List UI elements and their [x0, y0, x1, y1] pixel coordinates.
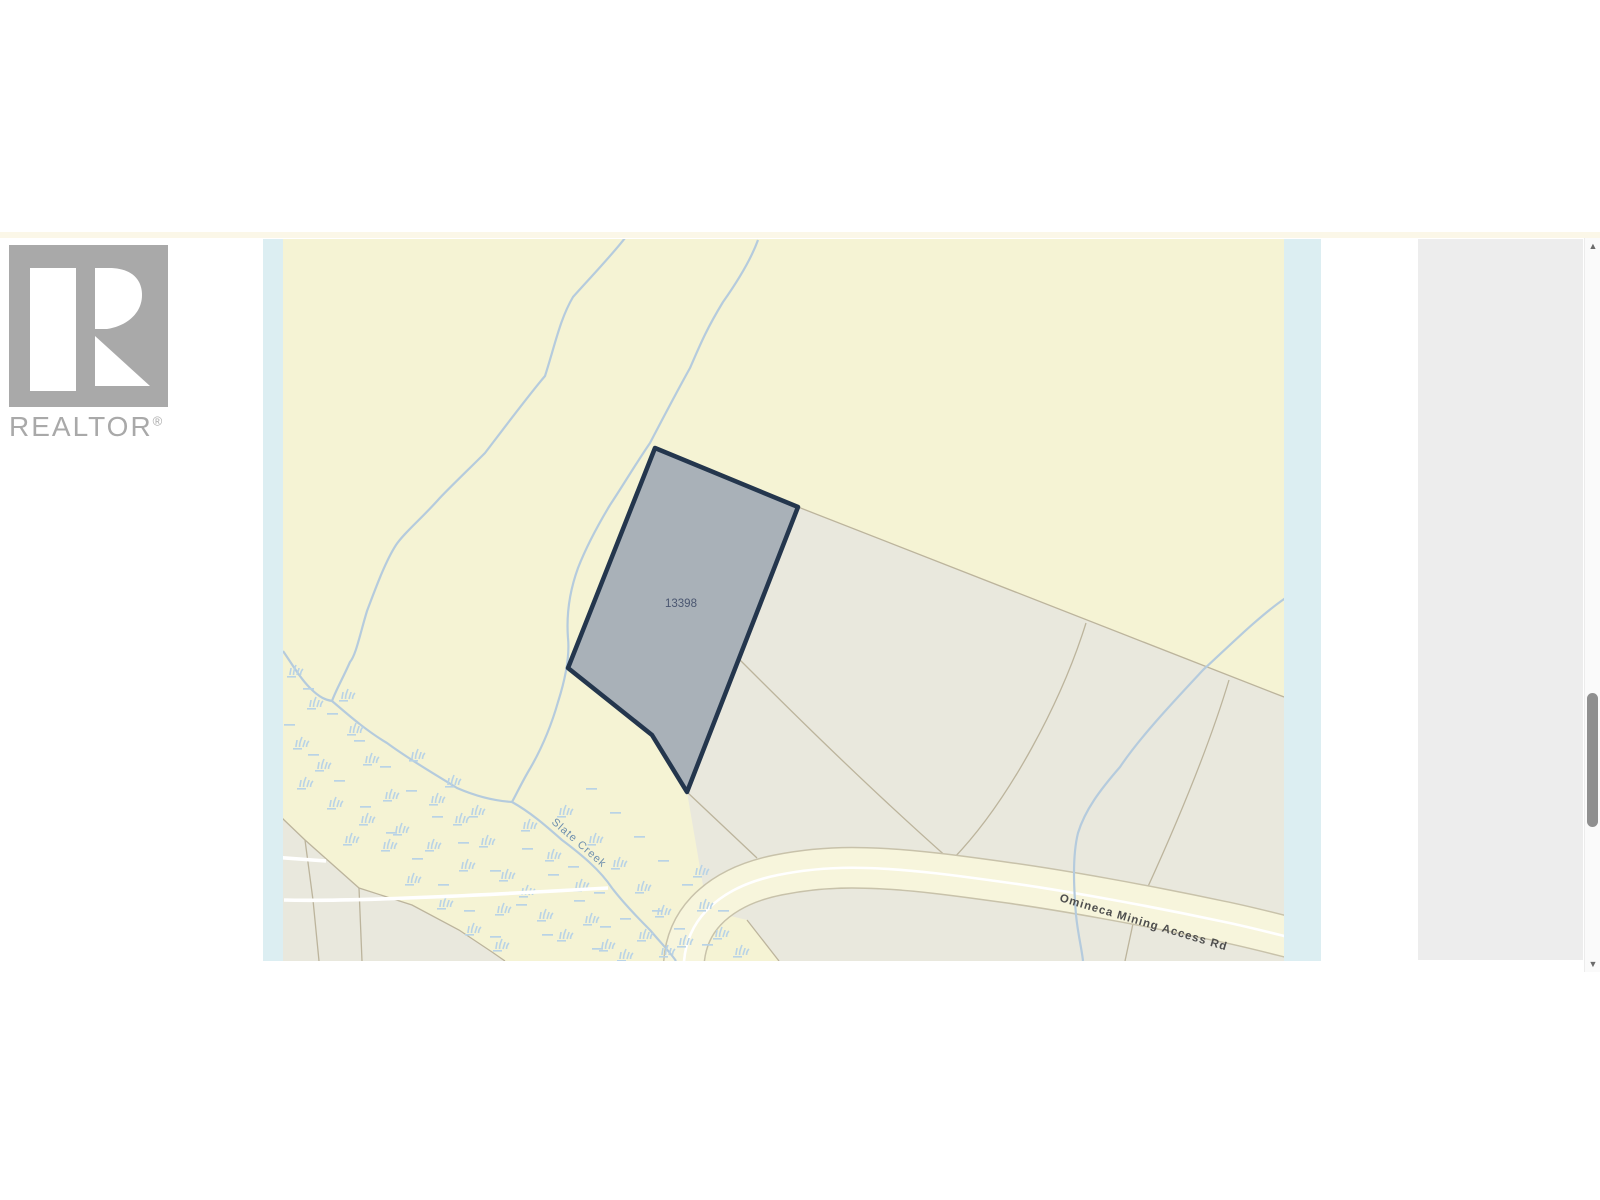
marsh-dash: [682, 884, 693, 886]
marsh-dash: [464, 910, 475, 912]
realtor-r-icon: [9, 245, 168, 407]
marsh-dash: [490, 936, 501, 938]
water-strip-right: [1284, 239, 1321, 961]
marsh-dash: [568, 866, 579, 868]
marsh-dash: [652, 910, 663, 912]
marsh-dash: [586, 788, 597, 790]
page: REALTOR®: [0, 0, 1600, 1200]
marsh-dash: [360, 806, 371, 808]
marsh-dash: [542, 934, 553, 936]
marsh-dash: [522, 848, 533, 850]
marsh-dash: [380, 766, 391, 768]
scroll-up-button[interactable]: ▲: [1585, 238, 1600, 254]
scrollbar-thumb[interactable]: [1587, 693, 1598, 827]
marsh-dash: [600, 926, 611, 928]
marsh-dash: [620, 918, 631, 920]
realtor-wordmark: REALTOR®: [9, 413, 179, 441]
marsh-dash: [594, 892, 605, 894]
marsh-dash: [658, 860, 669, 862]
parcel-number-label: 13398: [665, 598, 697, 610]
side-panel: [1418, 239, 1583, 960]
marsh-dash: [284, 724, 295, 726]
marsh-dash: [308, 754, 319, 756]
map-svg[interactable]: 13398 Slate Creek Omineca Mining Access …: [263, 239, 1321, 961]
water-strip-left: [263, 239, 283, 961]
top-divider: [0, 232, 1600, 238]
marsh-dash: [303, 688, 314, 690]
marsh-dash: [548, 874, 559, 876]
marsh-dash: [610, 812, 621, 814]
marsh-dash: [438, 884, 449, 886]
marsh-dash: [674, 928, 685, 930]
marsh-dash: [412, 858, 423, 860]
marsh-dash: [490, 870, 501, 872]
marsh-dash: [574, 900, 585, 902]
listing-map-image[interactable]: 13398 Slate Creek Omineca Mining Access …: [263, 239, 1321, 961]
marsh-dash: [458, 842, 469, 844]
marsh-dash: [516, 904, 527, 906]
marsh-dash: [592, 948, 603, 950]
marsh-dash: [634, 836, 645, 838]
realtor-logo: REALTOR®: [9, 245, 179, 441]
marsh-dash: [386, 832, 397, 834]
marsh-dash: [702, 944, 713, 946]
marsh-dash: [327, 713, 338, 715]
marsh-dash: [354, 740, 365, 742]
scrollbar[interactable]: ▲ ▼: [1584, 238, 1600, 972]
marsh-dash: [432, 816, 443, 818]
marsh-dash: [334, 780, 345, 782]
scroll-down-button[interactable]: ▼: [1585, 956, 1600, 972]
registered-mark: ®: [153, 414, 165, 429]
marsh-dash: [406, 790, 417, 792]
marsh-dash: [718, 910, 729, 912]
